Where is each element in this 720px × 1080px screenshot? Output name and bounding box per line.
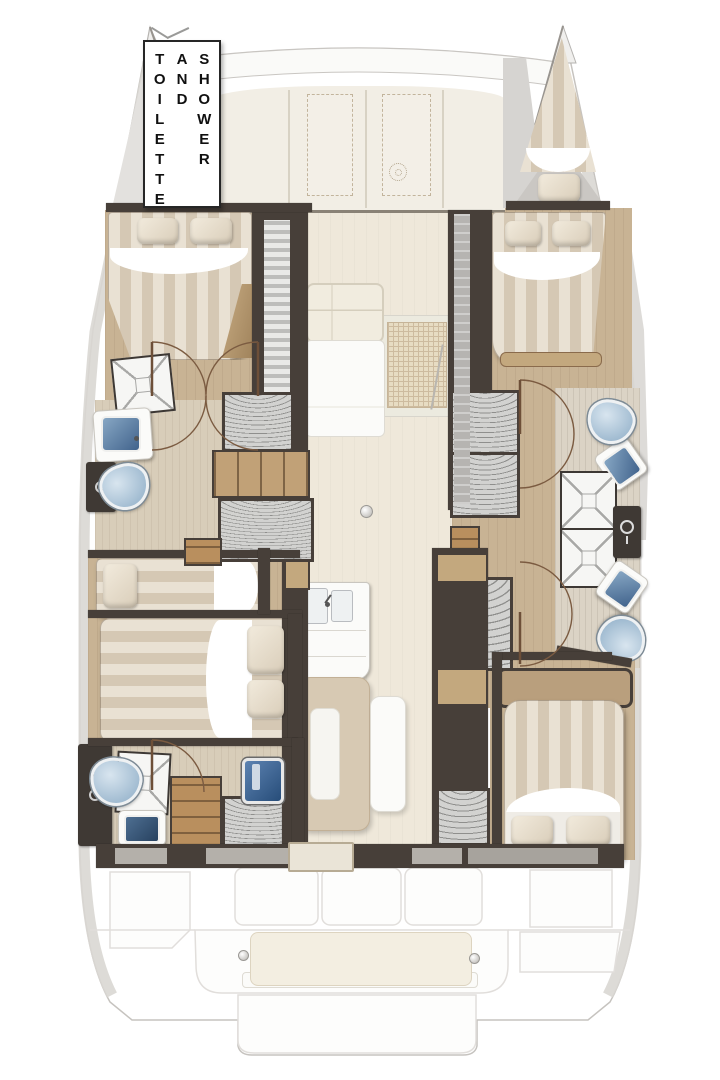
door-swing-arc bbox=[152, 342, 206, 396]
catamaran-floor-plan: TOILETTE AND SHOWER bbox=[0, 0, 720, 1080]
door-swing-layer bbox=[0, 0, 720, 1080]
sign-word-shower: SHOWER bbox=[197, 51, 212, 171]
door-swing-arc bbox=[520, 562, 572, 614]
door-swing-arc bbox=[520, 380, 574, 434]
sign-word-toilette: TOILETTE bbox=[152, 51, 167, 211]
sign-word-and: AND bbox=[175, 51, 190, 111]
door-swing-arc bbox=[520, 434, 574, 488]
door-swing-arc bbox=[206, 342, 258, 394]
door-swing-arc bbox=[520, 614, 572, 666]
door-swing-arc bbox=[152, 740, 204, 792]
door-swing-arc bbox=[206, 396, 258, 450]
door-swing-arc bbox=[152, 396, 206, 450]
toilette-and-shower-sign: TOILETTE AND SHOWER bbox=[143, 40, 221, 208]
